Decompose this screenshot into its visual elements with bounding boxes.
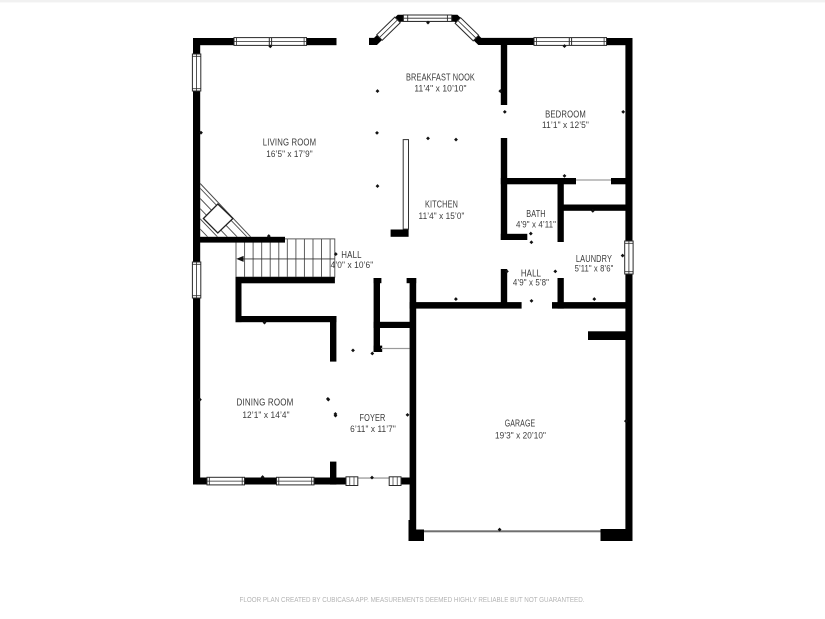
svg-text:6’11" x 11’7": 6’11" x 11’7" [350,424,396,434]
svg-text:11’1" x 12’5": 11’1" x 12’5" [542,120,589,130]
svg-text:11’4" x 10’10": 11’4" x 10’10" [414,84,466,94]
svg-text:12’1" x 14’4": 12’1" x 14’4" [242,410,289,420]
svg-text:5’11" x 8’6": 5’11" x 8’6" [575,264,614,274]
svg-text:DINING ROOM: DINING ROOM [237,398,294,409]
svg-text:11’4" x 15’0": 11’4" x 15’0" [419,211,465,221]
svg-text:BREAKFAST NOOK: BREAKFAST NOOK [406,73,475,84]
svg-text:KITCHEN: KITCHEN [425,200,458,211]
svg-text:LIVING ROOM: LIVING ROOM [263,138,316,149]
svg-text:BATH: BATH [526,209,545,220]
svg-text:4’9" x 4’11": 4’9" x 4’11" [516,220,556,230]
svg-text:BEDROOM: BEDROOM [545,110,586,121]
svg-text:4’0" x 10’6": 4’0" x 10’6" [331,260,374,270]
svg-text:GARAGE: GARAGE [505,419,536,430]
svg-text:FLOOR PLAN CREATED BY CUBICASA: FLOOR PLAN CREATED BY CUBICASA APP. MEAS… [240,595,585,604]
svg-text:4’9" x 5’8": 4’9" x 5’8" [513,278,549,288]
svg-text:16’5" x 17’9": 16’5" x 17’9" [266,149,312,159]
svg-text:FOYER: FOYER [360,413,386,424]
svg-text:19’3" x 20’10": 19’3" x 20’10" [495,431,546,441]
